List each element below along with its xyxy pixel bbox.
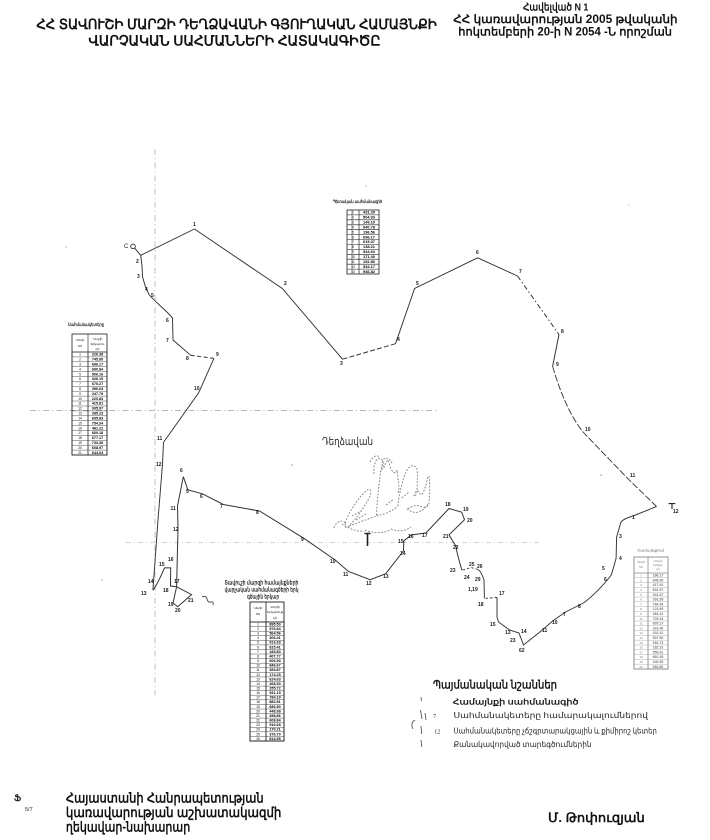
svg-text:5: 5 (602, 566, 605, 572)
svg-text:695.83: 695.83 (92, 416, 103, 420)
svg-text:14: 14 (78, 416, 82, 420)
svg-text:Սահմանակետերը: Սահմանակետերը (68, 322, 104, 327)
svg-text:Քանակավորված տարեգծումներին: Քանակավորված տարեգծումներին (454, 740, 592, 749)
svg-text:8: 8 (561, 329, 564, 335)
svg-text:415.81: 415.81 (92, 402, 103, 406)
svg-text:Սահմանակետերը համարակալումներո: Սահմանակետերը համարակալումներով (454, 711, 650, 720)
svg-text:25: 25 (256, 732, 260, 736)
svg-text:Կետի: Կետի (637, 560, 646, 564)
svg-text:448.98: 448.98 (269, 709, 280, 713)
svg-text:935.97: 935.97 (92, 407, 103, 411)
svg-text:123.69: 123.69 (653, 607, 664, 611)
svg-text:15: 15 (78, 421, 82, 425)
svg-text:326.15: 326.15 (92, 377, 103, 381)
svg-text:13: 13 (256, 677, 260, 681)
svg-text:13: 13 (505, 630, 511, 636)
svg-text:12: 12 (639, 626, 643, 630)
svg-text:2: 2 (136, 259, 139, 265)
svg-text:3: 3 (340, 361, 343, 367)
svg-text:10: 10 (552, 620, 558, 626)
svg-text:10: 10 (639, 617, 643, 621)
svg-text:941.67: 941.67 (653, 593, 664, 597)
svg-text:Դեղձավան: Դեղձավան (322, 436, 373, 448)
svg-text:16: 16 (639, 646, 643, 650)
svg-text:2: 2 (640, 578, 642, 582)
svg-text:3: 3 (79, 363, 81, 367)
svg-text:13: 13 (639, 631, 643, 635)
svg-text:21: 21 (188, 598, 194, 604)
svg-text:268.53: 268.53 (269, 682, 280, 686)
svg-text:12: 12 (173, 527, 179, 533)
svg-text:4: 4 (352, 226, 354, 230)
svg-text:Պետական սահմանագիծ: Պետական սահմանագիծ (333, 199, 383, 204)
svg-text:8: 8 (578, 604, 581, 610)
svg-text:25: 25 (469, 562, 475, 568)
svg-text:984.80: 984.80 (653, 665, 664, 669)
svg-text:166.17: 166.17 (653, 574, 664, 578)
svg-text:23: 23 (256, 723, 260, 727)
svg-text:5: 5 (151, 293, 154, 299)
svg-text:ՎԱՐՉԱԿԱՆ ՍԱՀՄԱՆՆԵՐԻ ՀԱՏԱԿԱԳԻ: ՎԱՐՉԱԿԱՆ ՍԱՀՄԱՆՆԵՐԻ ՀԱՏԱԿԱԳԻԾԸ (88, 34, 380, 49)
svg-text:26: 26 (477, 564, 483, 570)
svg-text:7: 7 (166, 338, 169, 344)
svg-text:14: 14 (639, 636, 643, 640)
svg-text:19: 19 (463, 507, 469, 513)
svg-text:14: 14 (256, 682, 260, 686)
svg-text:C: C (124, 244, 129, 250)
svg-text:725.24: 725.24 (653, 617, 664, 621)
svg-text:15: 15 (256, 687, 260, 691)
svg-text:8: 8 (79, 387, 81, 391)
svg-text:644.64: 644.64 (92, 451, 104, 455)
svg-text:երկարութ: երկարութ (267, 610, 284, 614)
svg-text:12: 12 (434, 730, 440, 736)
svg-text:406.41: 406.41 (269, 636, 280, 640)
svg-text:19: 19 (78, 441, 82, 445)
svg-text:24: 24 (256, 728, 260, 732)
svg-text:815.41: 815.41 (269, 645, 280, 649)
svg-text:16: 16 (256, 691, 260, 695)
svg-text:660.18: 660.18 (92, 431, 103, 435)
svg-text:323.46: 323.46 (653, 626, 664, 630)
svg-text:606.53: 606.53 (269, 659, 280, 663)
svg-text:13: 13 (141, 591, 147, 597)
svg-text:10: 10 (330, 559, 336, 565)
svg-text:11: 11 (78, 402, 82, 406)
svg-text:ՀՀ ՏԱՎՈՒՇԻ ՄԱՐԶԻ ԴԵՂՁԱՎԱՆԻ ԳՅՈ: ՀՀ ՏԱՎՈՒՇԻ ՄԱՐԶԻ ԴԵՂՁԱՎԱՆԻ ԳՅՈՒՂԱԿԱՆ ՀԱՄ… (36, 17, 437, 32)
svg-text:624.63: 624.63 (269, 677, 280, 681)
svg-text:608.84: 608.84 (269, 719, 281, 723)
svg-text:1: 1 (632, 515, 635, 521)
svg-text:531.15: 531.15 (269, 691, 280, 695)
svg-text:745.90: 745.90 (92, 358, 103, 362)
svg-text:6: 6 (352, 235, 354, 239)
svg-text:18: 18 (163, 588, 169, 594)
svg-text:754.34: 754.34 (92, 421, 104, 425)
svg-text:2: 2 (352, 216, 354, 220)
svg-text:18: 18 (639, 655, 643, 659)
svg-text:4: 4 (257, 636, 259, 640)
svg-text:662.45: 662.45 (653, 655, 664, 659)
svg-text:14: 14 (521, 629, 527, 635)
svg-text:9: 9 (79, 392, 81, 396)
svg-text:17: 17 (78, 431, 82, 435)
svg-text:686.50: 686.50 (269, 705, 280, 709)
svg-text:8: 8 (256, 510, 259, 516)
svg-text:9: 9 (556, 362, 559, 368)
svg-text:Հավելված N 1: Հավելված N 1 (523, 2, 589, 14)
svg-text:21: 21 (78, 451, 82, 455)
svg-text:18: 18 (478, 602, 484, 608)
svg-text:Կետի: Կետի (254, 606, 263, 610)
svg-text:696.17: 696.17 (92, 363, 103, 367)
svg-text:11: 11 (171, 506, 177, 512)
svg-text:3: 3 (257, 632, 259, 636)
svg-text:559.61: 559.61 (653, 650, 664, 654)
svg-text:784.19: 784.19 (269, 696, 280, 700)
svg-text:Համայնքում: Համայնքում (637, 548, 665, 553)
svg-text:6: 6 (180, 468, 183, 474)
svg-text:14: 14 (400, 551, 406, 557)
svg-text:8: 8 (352, 245, 354, 249)
svg-text:23: 23 (450, 568, 456, 574)
svg-text:182.31: 182.31 (653, 646, 664, 650)
svg-text:1: 1 (352, 211, 354, 215)
svg-text:Պայմանական նշաններ: Պայմանական նշաններ (433, 679, 557, 692)
svg-text:12: 12 (78, 407, 82, 411)
svg-text:5: 5 (257, 641, 259, 645)
svg-text:13: 13 (383, 574, 389, 580)
svg-text:6: 6 (79, 377, 81, 381)
svg-text:11: 11 (157, 436, 163, 442)
svg-text:12: 12 (256, 673, 260, 677)
svg-text:5/7: 5/7 (25, 807, 33, 813)
svg-text:17: 17 (422, 533, 428, 539)
svg-text:24: 24 (464, 575, 470, 581)
svg-text:19: 19 (168, 602, 174, 608)
svg-text:7: 7 (257, 650, 259, 654)
svg-text:733.36: 733.36 (92, 441, 103, 445)
svg-text:1: 1 (193, 222, 196, 228)
svg-text:15: 15 (490, 622, 496, 628)
svg-text:226.38: 226.38 (92, 353, 103, 357)
svg-text:691.97: 691.97 (653, 588, 664, 592)
svg-text:15: 15 (159, 562, 165, 568)
svg-text:391.59: 391.59 (653, 598, 664, 602)
svg-text:երկարու: երկարու (91, 342, 105, 346)
svg-text:11: 11 (256, 668, 260, 672)
svg-text:813.95: 813.95 (269, 737, 280, 741)
svg-text:4: 4 (619, 556, 622, 562)
svg-text:8: 8 (186, 356, 189, 362)
svg-text:183.83: 183.83 (269, 650, 280, 654)
svg-text:4: 4 (640, 588, 642, 592)
svg-text:463.31: 463.31 (653, 612, 664, 616)
svg-text:3: 3 (619, 534, 622, 540)
svg-text:407.77: 407.77 (269, 655, 280, 659)
svg-text:576.84: 576.84 (269, 627, 281, 631)
svg-text:608.97: 608.97 (92, 446, 103, 450)
svg-text:11: 11 (542, 628, 548, 634)
svg-text:232.41: 232.41 (653, 631, 664, 635)
svg-text:916.68: 916.68 (269, 723, 280, 727)
svg-text:12: 12 (366, 581, 372, 587)
svg-text:14: 14 (148, 579, 154, 585)
svg-text:240.65: 240.65 (653, 660, 664, 664)
svg-text:605.17: 605.17 (653, 622, 664, 626)
svg-text:7: 7 (640, 602, 642, 606)
svg-text:16: 16 (168, 557, 174, 563)
svg-text:2: 2 (257, 627, 259, 631)
svg-text:174.25: 174.25 (269, 673, 280, 677)
svg-text:7: 7 (519, 269, 522, 275)
svg-text:գծային երկար: գծային երկար (247, 594, 279, 601)
svg-text:11: 11 (351, 260, 355, 264)
svg-text:5: 5 (640, 593, 642, 597)
svg-text:NN: NN (78, 344, 82, 348)
svg-text:564.56: 564.56 (269, 632, 280, 636)
svg-text:6: 6 (166, 318, 169, 324)
svg-text:1: 1 (640, 574, 642, 578)
svg-text:9: 9 (640, 612, 642, 616)
svg-text:17: 17 (639, 650, 643, 654)
svg-text:20: 20 (639, 665, 643, 669)
svg-text:ղեկավար-նախարար: ղեկավար-նախարար (66, 820, 190, 836)
svg-text:2: 2 (284, 281, 287, 287)
svg-text:255.72: 255.72 (269, 687, 280, 691)
svg-text:29: 29 (475, 577, 481, 583)
svg-text:9: 9 (257, 659, 259, 663)
svg-text:20: 20 (467, 518, 473, 524)
svg-text:846.67: 846.67 (269, 664, 280, 668)
svg-text:6: 6 (640, 598, 642, 602)
svg-text:2: 2 (79, 358, 81, 362)
svg-text:23: 23 (510, 638, 516, 644)
svg-text:6: 6 (200, 494, 203, 500)
svg-text:913.33: 913.33 (269, 641, 280, 645)
svg-text:4: 4 (397, 337, 400, 343)
svg-text:6: 6 (604, 577, 607, 583)
svg-text:170.21: 170.21 (269, 728, 280, 732)
svg-text:20: 20 (175, 608, 181, 614)
svg-text:22: 22 (256, 719, 260, 723)
svg-text:12: 12 (351, 265, 355, 269)
svg-text:12: 12 (156, 462, 162, 468)
svg-text:Համայնքի սահմանագիծ: Համայնքի սահմանագիծ (453, 697, 579, 707)
svg-text:7: 7 (79, 382, 81, 386)
svg-text:9: 9 (216, 352, 219, 358)
svg-text:26: 26 (256, 737, 260, 741)
svg-text:1: 1 (79, 353, 81, 357)
svg-text:396.63: 396.63 (92, 387, 103, 391)
svg-text:(մ): (մ) (96, 347, 100, 351)
svg-text:3: 3 (640, 583, 642, 587)
svg-text:15: 15 (639, 641, 643, 645)
svg-text:8: 8 (640, 607, 642, 611)
svg-text:1: 1 (257, 622, 259, 626)
svg-text:Ֆ: Ֆ (14, 793, 21, 803)
svg-text:946.82: 946.82 (363, 269, 376, 274)
svg-text:Սահմանակետերը չճշգրտարակցային: Սահմանակետերը չճշգրտարակցային և քիմիրոշ … (454, 727, 657, 736)
svg-text:22: 22 (453, 545, 459, 551)
svg-text:NN: NN (256, 612, 260, 616)
svg-text:7: 7 (563, 612, 566, 618)
svg-text:Կողմի: Կողմի (93, 337, 103, 341)
svg-text:19: 19 (639, 660, 643, 664)
svg-text:21: 21 (443, 534, 449, 540)
svg-text:16: 16 (408, 534, 414, 540)
svg-text:18: 18 (256, 700, 260, 704)
svg-text:895.50: 895.50 (269, 622, 280, 626)
svg-text:18: 18 (445, 502, 451, 508)
svg-text:9: 9 (352, 250, 354, 254)
svg-text:670.27: 670.27 (92, 382, 103, 386)
svg-text:16: 16 (78, 426, 82, 430)
svg-text:677.17: 677.17 (92, 436, 103, 440)
svg-text:10: 10 (351, 255, 355, 259)
svg-text:848.99: 848.99 (653, 578, 664, 582)
svg-text:վարչական սահմանագծերի երկ: վարչական սահմանագծերի երկ (225, 586, 299, 594)
svg-text:5: 5 (186, 489, 189, 495)
svg-text:3: 3 (137, 274, 140, 280)
svg-text:19: 19 (256, 705, 260, 709)
svg-text:7: 7 (433, 714, 436, 720)
svg-text:10: 10 (78, 397, 82, 401)
svg-text:5: 5 (352, 230, 354, 234)
svg-text:247.79: 247.79 (92, 392, 103, 396)
svg-text:690.84: 690.84 (92, 367, 104, 371)
svg-text:5: 5 (416, 281, 419, 287)
svg-text:(մ): (մ) (656, 567, 660, 571)
svg-text:8: 8 (257, 655, 259, 659)
svg-text:9: 9 (301, 537, 304, 543)
svg-text:4: 4 (145, 287, 148, 293)
svg-text:285.23: 285.23 (92, 412, 103, 416)
svg-text:6: 6 (257, 645, 259, 649)
svg-text:Կետի: Կետի (76, 338, 85, 342)
svg-text:15: 15 (398, 539, 404, 545)
svg-text:506.16: 506.16 (92, 372, 103, 376)
svg-text:1,19: 1,19 (468, 587, 478, 593)
svg-text:376.70: 376.70 (269, 732, 280, 736)
svg-text:(մ): (մ) (273, 616, 277, 620)
svg-text:NN: NN (639, 565, 643, 569)
svg-text:ՀՀ կառավարության 2005 թվականի: ՀՀ կառավարության 2005 թվականի (453, 13, 677, 26)
svg-text:Մ. Թոփուզյան: Մ. Թոփուզյան (548, 810, 645, 825)
svg-text:458.86: 458.86 (269, 714, 280, 718)
svg-text:20: 20 (256, 709, 260, 713)
svg-text:11: 11 (639, 622, 642, 626)
svg-text:13: 13 (351, 270, 355, 274)
svg-text:17: 17 (174, 579, 180, 585)
svg-text:13: 13 (78, 412, 82, 416)
svg-text:Կողմի: Կողմի (270, 605, 280, 609)
svg-text:394.87: 394.87 (269, 668, 280, 672)
svg-text:5: 5 (79, 372, 81, 376)
svg-text:11: 11 (343, 572, 349, 578)
svg-text:11: 11 (630, 473, 636, 479)
svg-text:21: 21 (256, 714, 260, 718)
svg-text:10: 10 (585, 427, 591, 433)
svg-text:17: 17 (499, 591, 505, 597)
svg-text:հոկտեմբերի 20-ի N 2054 -Ն որոշ: հոկտեմբերի 20-ի N 2054 -Ն որոշման (458, 25, 672, 39)
svg-text:12: 12 (673, 509, 679, 515)
svg-text:10: 10 (256, 664, 260, 668)
svg-text:882.81: 882.81 (269, 700, 280, 704)
svg-text:17: 17 (256, 696, 260, 700)
svg-text:62: 62 (519, 648, 525, 654)
svg-text:6: 6 (476, 250, 479, 256)
svg-text:18: 18 (78, 436, 82, 440)
svg-text:7: 7 (220, 504, 223, 510)
svg-text:10: 10 (194, 386, 200, 392)
svg-text:481.22: 481.22 (92, 426, 103, 430)
svg-text:3: 3 (352, 221, 354, 225)
svg-text:417.92: 417.92 (653, 583, 664, 587)
svg-text:4: 4 (79, 367, 81, 371)
svg-text:220.83: 220.83 (92, 397, 103, 401)
svg-text:Տավուշի մարզի համայնքների: Տավուշի մարզի համայնքների (225, 579, 299, 587)
svg-text:7: 7 (352, 240, 354, 244)
svg-text:20: 20 (78, 446, 82, 450)
svg-text:784.54: 784.54 (653, 602, 664, 606)
svg-text:992.73: 992.73 (653, 641, 664, 645)
svg-text:507.60: 507.60 (653, 636, 664, 640)
